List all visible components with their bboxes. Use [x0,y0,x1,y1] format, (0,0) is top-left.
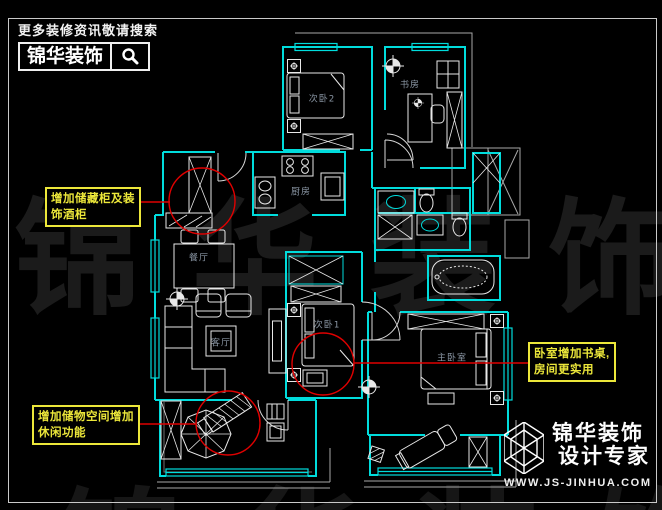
footer-website: WWW.JS-JINHUA.COM [504,477,652,489]
callout-line: 房间更实用 [534,362,610,378]
floorplan-canvas: 锦华装饰 锦华装饰 [0,0,662,510]
entry-storage-cabinet [189,157,211,213]
study-wardrobe [447,92,462,148]
callout-desk: 卧室增加书桌, 房间更实用 [528,342,616,382]
bath-cabinet [378,215,412,239]
study-desk [408,94,444,142]
cube-logo-icon [504,422,544,474]
brand-logo-text: 锦华装饰 [20,44,110,69]
room-label-living: 客厅 [211,336,231,349]
washer-units [267,404,284,441]
toilet-1 [419,189,434,212]
bedroom1-bed [302,304,354,366]
bedroom1-chest [303,370,327,386]
bath-vanity-2 [417,215,443,235]
callout-line: 增加储藏柜及装 [51,191,135,207]
footer-brand-name: 锦华装饰 [552,422,650,445]
master-bench [428,393,454,404]
balcony-cabinet-right [469,437,487,467]
room-label-study: 书房 [400,78,420,91]
bedroom2-wardrobe [303,134,353,149]
room-label-bedroom2: 次卧2 [309,92,335,105]
highlight-circle-storage [169,168,235,234]
bath-vanity-1 [378,191,414,213]
parasol-icon [181,410,231,458]
furniture [161,60,504,472]
lounge-chair-right [395,423,459,471]
toilet-2 [452,213,467,236]
footer-branding: 锦华装饰 设计专家 WWW.JS-JINHUA.COM [504,422,652,489]
master-wardrobe [408,314,484,329]
callout-line: 饰酒柜 [51,207,135,223]
room-label-dining: 餐厅 [189,251,209,264]
room-label-kitchen: 厨房 [291,185,311,198]
bathtub [432,260,494,294]
callout-leisure: 增加储物空间增加 休闲功能 [32,405,140,445]
kitchen-stove [282,156,313,176]
sofa [165,306,225,392]
basin-2 [422,219,439,231]
room-label-bedroom1: 次卧1 [314,318,340,331]
callout-storage-wine: 增加储藏柜及装 饰酒柜 [45,187,141,227]
study-cabinet [437,61,459,88]
basin-1 [387,196,406,209]
kitchen-sink [255,177,275,208]
search-icon [112,44,148,69]
brand-search-box: 锦华装饰 [18,42,150,71]
footer-brand-slogan: 设计专家 [558,445,650,468]
search-tagline: 更多装修资讯敬请搜索 [18,20,158,39]
callout-line: 休闲功能 [38,425,134,441]
dining-table [174,230,234,302]
desk-symbol-icon [412,97,424,109]
target-symbol-icon [166,288,188,310]
armchairs [196,294,251,317]
header-branding: 更多装修资讯敬请搜索 锦华装饰 [18,20,158,71]
callout-line: 增加储物空间增加 [38,409,134,425]
tv-cabinet [269,309,286,373]
room-label-master: 主卧室 [437,351,467,364]
bedroom1-storage [291,286,341,302]
callout-line: 卧室增加书桌, [534,346,610,362]
kitchen-fridge [321,173,344,200]
